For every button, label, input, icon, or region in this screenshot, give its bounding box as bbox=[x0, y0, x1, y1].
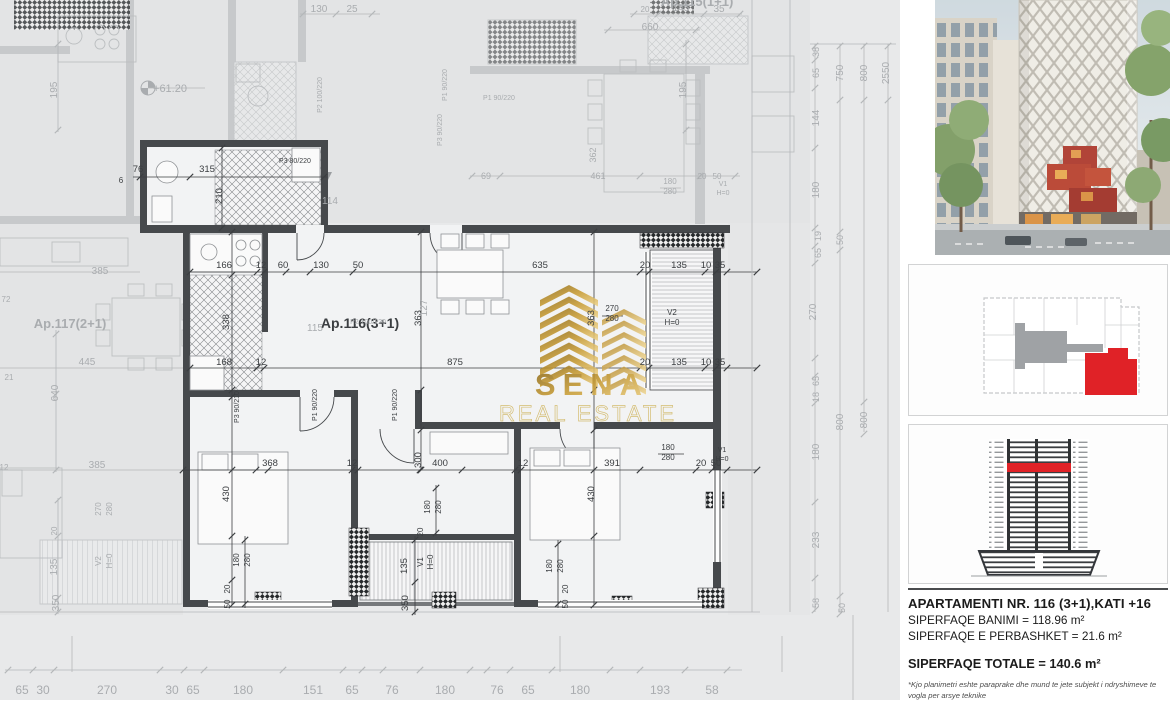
svg-text:350: 350 bbox=[51, 594, 62, 611]
svg-text:127: 127 bbox=[419, 299, 430, 316]
svg-text:300: 300 bbox=[413, 452, 424, 468]
svg-text:195: 195 bbox=[678, 81, 689, 98]
svg-text:65: 65 bbox=[186, 683, 200, 697]
balcony-v1 bbox=[360, 542, 512, 600]
svg-text:50: 50 bbox=[837, 603, 847, 613]
svg-text:391: 391 bbox=[604, 458, 620, 469]
svg-text:76: 76 bbox=[385, 683, 399, 697]
svg-text:180: 180 bbox=[545, 559, 554, 573]
svg-text:50: 50 bbox=[223, 599, 232, 608]
svg-text:180: 180 bbox=[663, 177, 677, 186]
svg-text:315: 315 bbox=[199, 164, 215, 175]
divider-line bbox=[908, 588, 1168, 590]
svg-text:P1 90/220: P1 90/220 bbox=[442, 69, 449, 101]
svg-text:30: 30 bbox=[165, 683, 179, 697]
key-plan-panel bbox=[908, 264, 1168, 416]
svg-text:270: 270 bbox=[94, 502, 103, 516]
svg-text:H=0: H=0 bbox=[716, 190, 729, 197]
svg-text:12: 12 bbox=[518, 458, 529, 469]
watermark-tagline: REAL ESTATE bbox=[499, 401, 677, 426]
svg-text:V2: V2 bbox=[94, 556, 103, 566]
svg-text:151: 151 bbox=[303, 683, 323, 697]
svg-text:368: 368 bbox=[262, 458, 278, 469]
sidebar: APARTAMENTI NR. 116 (3+1),KATI +16 SIPER… bbox=[900, 0, 1170, 700]
elevation-side-left bbox=[989, 439, 1005, 551]
svg-text:114: 114 bbox=[322, 196, 338, 207]
svg-text:65: 65 bbox=[345, 683, 359, 697]
svg-text:280: 280 bbox=[661, 453, 675, 462]
svg-text:21: 21 bbox=[5, 373, 14, 382]
elevation-tower bbox=[1007, 439, 1071, 551]
svg-text:461: 461 bbox=[590, 171, 605, 181]
svg-text:635: 635 bbox=[532, 260, 548, 271]
svg-text:60: 60 bbox=[278, 260, 289, 271]
svg-text:Ap.117(2+1): Ap.117(2+1) bbox=[34, 316, 107, 331]
svg-text:180: 180 bbox=[811, 443, 822, 460]
svg-text:65: 65 bbox=[15, 683, 29, 697]
svg-text:H=0: H=0 bbox=[105, 553, 114, 568]
svg-text:660: 660 bbox=[642, 22, 659, 33]
apartment-info: APARTAMENTI NR. 116 (3+1),KATI +16 SIPER… bbox=[908, 596, 1170, 701]
svg-text:750: 750 bbox=[835, 64, 846, 81]
svg-text:193: 193 bbox=[650, 683, 670, 697]
svg-text:P2 100/220: P2 100/220 bbox=[350, 319, 386, 326]
svg-text:35: 35 bbox=[715, 260, 726, 271]
svg-text:800: 800 bbox=[859, 64, 870, 81]
svg-text:12: 12 bbox=[256, 357, 267, 368]
screenshot-root: SENA REAL ESTATE 16612601305063520135103… bbox=[0, 0, 1170, 700]
svg-text:P3 80/220: P3 80/220 bbox=[279, 158, 311, 165]
svg-text:V2: V2 bbox=[667, 308, 677, 317]
svg-text:270: 270 bbox=[97, 683, 117, 697]
svg-text:50: 50 bbox=[713, 172, 722, 181]
svg-text:20: 20 bbox=[640, 260, 651, 271]
svg-text:280: 280 bbox=[105, 502, 114, 516]
svg-text:640: 640 bbox=[50, 384, 61, 401]
svg-text:350: 350 bbox=[400, 595, 411, 611]
svg-text:50: 50 bbox=[561, 599, 570, 608]
svg-text:65: 65 bbox=[813, 248, 823, 258]
svg-text:35: 35 bbox=[715, 357, 726, 368]
svg-text:135: 135 bbox=[671, 357, 687, 368]
svg-text:130: 130 bbox=[311, 4, 328, 15]
svg-text:69: 69 bbox=[481, 171, 491, 181]
svg-text:P1 90/220: P1 90/220 bbox=[392, 389, 399, 421]
svg-text:12: 12 bbox=[256, 260, 267, 271]
svg-text:+61.20: +61.20 bbox=[153, 83, 187, 95]
svg-text:135: 135 bbox=[49, 558, 60, 575]
svg-text:135: 135 bbox=[671, 260, 687, 271]
svg-text:166: 166 bbox=[216, 260, 232, 271]
svg-text:233: 233 bbox=[811, 531, 822, 548]
building-render-image bbox=[935, 0, 1170, 255]
svg-text:400: 400 bbox=[432, 458, 448, 469]
svg-text:P3 90/210: P3 90/210 bbox=[234, 391, 241, 423]
area-living-label: SIPERFAQE BANIMI = 118.96 m² bbox=[908, 613, 1170, 627]
svg-text:H=0: H=0 bbox=[665, 318, 680, 327]
svg-text:800: 800 bbox=[859, 411, 870, 428]
svg-text:430: 430 bbox=[221, 486, 232, 502]
svg-text:50: 50 bbox=[835, 235, 845, 245]
svg-text:180: 180 bbox=[423, 500, 432, 514]
svg-text:280: 280 bbox=[605, 314, 619, 323]
svg-text:19: 19 bbox=[813, 231, 823, 241]
svg-text:P1 90/220: P1 90/220 bbox=[312, 389, 319, 421]
svg-text:65: 65 bbox=[811, 68, 821, 78]
svg-text:180: 180 bbox=[232, 553, 241, 567]
svg-text:10: 10 bbox=[701, 260, 712, 271]
svg-text:135: 135 bbox=[399, 558, 410, 574]
area-total-label: SIPERFAQE TOTALE = 140.6 m² bbox=[908, 656, 1170, 671]
svg-text:38: 38 bbox=[811, 47, 821, 57]
svg-text:280: 280 bbox=[556, 559, 565, 573]
elevation-highlighted-floor bbox=[1007, 463, 1071, 472]
svg-text:180: 180 bbox=[570, 683, 590, 697]
svg-text:20: 20 bbox=[50, 526, 59, 535]
svg-text:6: 6 bbox=[119, 176, 124, 185]
svg-text:76: 76 bbox=[133, 164, 144, 175]
svg-text:35: 35 bbox=[713, 4, 725, 15]
svg-text:30: 30 bbox=[36, 683, 50, 697]
faded-region-right bbox=[728, 223, 810, 615]
svg-text:168: 168 bbox=[216, 357, 232, 368]
floorplan-canvas: SENA REAL ESTATE 16612601305063520135103… bbox=[0, 0, 900, 700]
svg-text:V1: V1 bbox=[416, 557, 425, 567]
svg-text:72: 72 bbox=[2, 295, 11, 304]
svg-text:800: 800 bbox=[835, 413, 846, 430]
svg-text:195: 195 bbox=[49, 81, 60, 98]
svg-text:180: 180 bbox=[811, 181, 822, 198]
svg-text:430: 430 bbox=[586, 486, 597, 502]
apartment-title: APARTAMENTI NR. 116 (3+1),KATI +16 bbox=[908, 596, 1170, 611]
svg-text:V1: V1 bbox=[718, 447, 727, 454]
svg-text:58: 58 bbox=[811, 598, 821, 608]
svg-text:12: 12 bbox=[0, 463, 9, 472]
key-plan-diagram bbox=[909, 265, 1167, 415]
svg-text:P1 90/220: P1 90/220 bbox=[483, 95, 515, 102]
svg-text:P2 100/220: P2 100/220 bbox=[317, 77, 324, 113]
elevation-diagram bbox=[909, 425, 1167, 583]
svg-text:18: 18 bbox=[811, 392, 821, 402]
svg-text:25: 25 bbox=[346, 4, 358, 15]
svg-text:20: 20 bbox=[223, 584, 232, 593]
svg-text:50: 50 bbox=[353, 260, 364, 271]
svg-text:385: 385 bbox=[89, 460, 106, 471]
svg-text:280: 280 bbox=[663, 187, 677, 196]
area-shared-label: SIPERFAQE E PERBASHKET = 21.6 m² bbox=[908, 629, 1170, 643]
svg-text:10: 10 bbox=[701, 357, 712, 368]
floorplan-drawing: SENA REAL ESTATE 16612601305063520135103… bbox=[0, 0, 900, 700]
svg-text:115: 115 bbox=[307, 323, 323, 334]
svg-text:20: 20 bbox=[641, 5, 650, 14]
svg-text:144: 144 bbox=[811, 109, 822, 126]
svg-text:20: 20 bbox=[698, 172, 707, 181]
footnote: *Kjo planimetri eshte paraprake dhe mund… bbox=[908, 680, 1160, 701]
svg-text:362: 362 bbox=[588, 147, 598, 162]
svg-text:20: 20 bbox=[561, 584, 570, 593]
svg-text:280: 280 bbox=[434, 500, 443, 514]
svg-text:65: 65 bbox=[521, 683, 535, 697]
svg-text:2550: 2550 bbox=[881, 61, 892, 84]
svg-text:180: 180 bbox=[435, 683, 455, 697]
svg-text:12: 12 bbox=[347, 458, 358, 469]
svg-text:V1: V1 bbox=[719, 181, 728, 188]
svg-text:58: 58 bbox=[705, 683, 719, 697]
svg-text:65: 65 bbox=[811, 376, 821, 386]
svg-text:338: 338 bbox=[221, 314, 232, 330]
svg-text:145: 145 bbox=[673, 3, 690, 14]
elevation-side-right bbox=[1073, 439, 1089, 551]
svg-text:280: 280 bbox=[243, 553, 252, 567]
svg-text:270: 270 bbox=[605, 304, 619, 313]
svg-text:130: 130 bbox=[313, 260, 329, 271]
svg-text:270: 270 bbox=[808, 303, 819, 320]
svg-text:H=0: H=0 bbox=[426, 554, 435, 569]
svg-text:180: 180 bbox=[661, 443, 675, 452]
svg-text:20: 20 bbox=[416, 527, 425, 536]
svg-text:P3 90/220: P3 90/220 bbox=[437, 114, 444, 146]
svg-text:76: 76 bbox=[490, 683, 504, 697]
svg-text:20: 20 bbox=[696, 458, 707, 469]
svg-text:H=0: H=0 bbox=[715, 456, 728, 463]
svg-text:20: 20 bbox=[640, 357, 651, 368]
elevation-panel bbox=[908, 424, 1168, 584]
svg-text:385: 385 bbox=[92, 266, 109, 277]
svg-text:363: 363 bbox=[586, 310, 597, 326]
svg-text:210: 210 bbox=[214, 188, 225, 204]
svg-text:875: 875 bbox=[447, 357, 463, 368]
svg-text:180: 180 bbox=[233, 683, 253, 697]
svg-text:445: 445 bbox=[79, 357, 96, 368]
watermark-name: SENA bbox=[535, 367, 649, 402]
